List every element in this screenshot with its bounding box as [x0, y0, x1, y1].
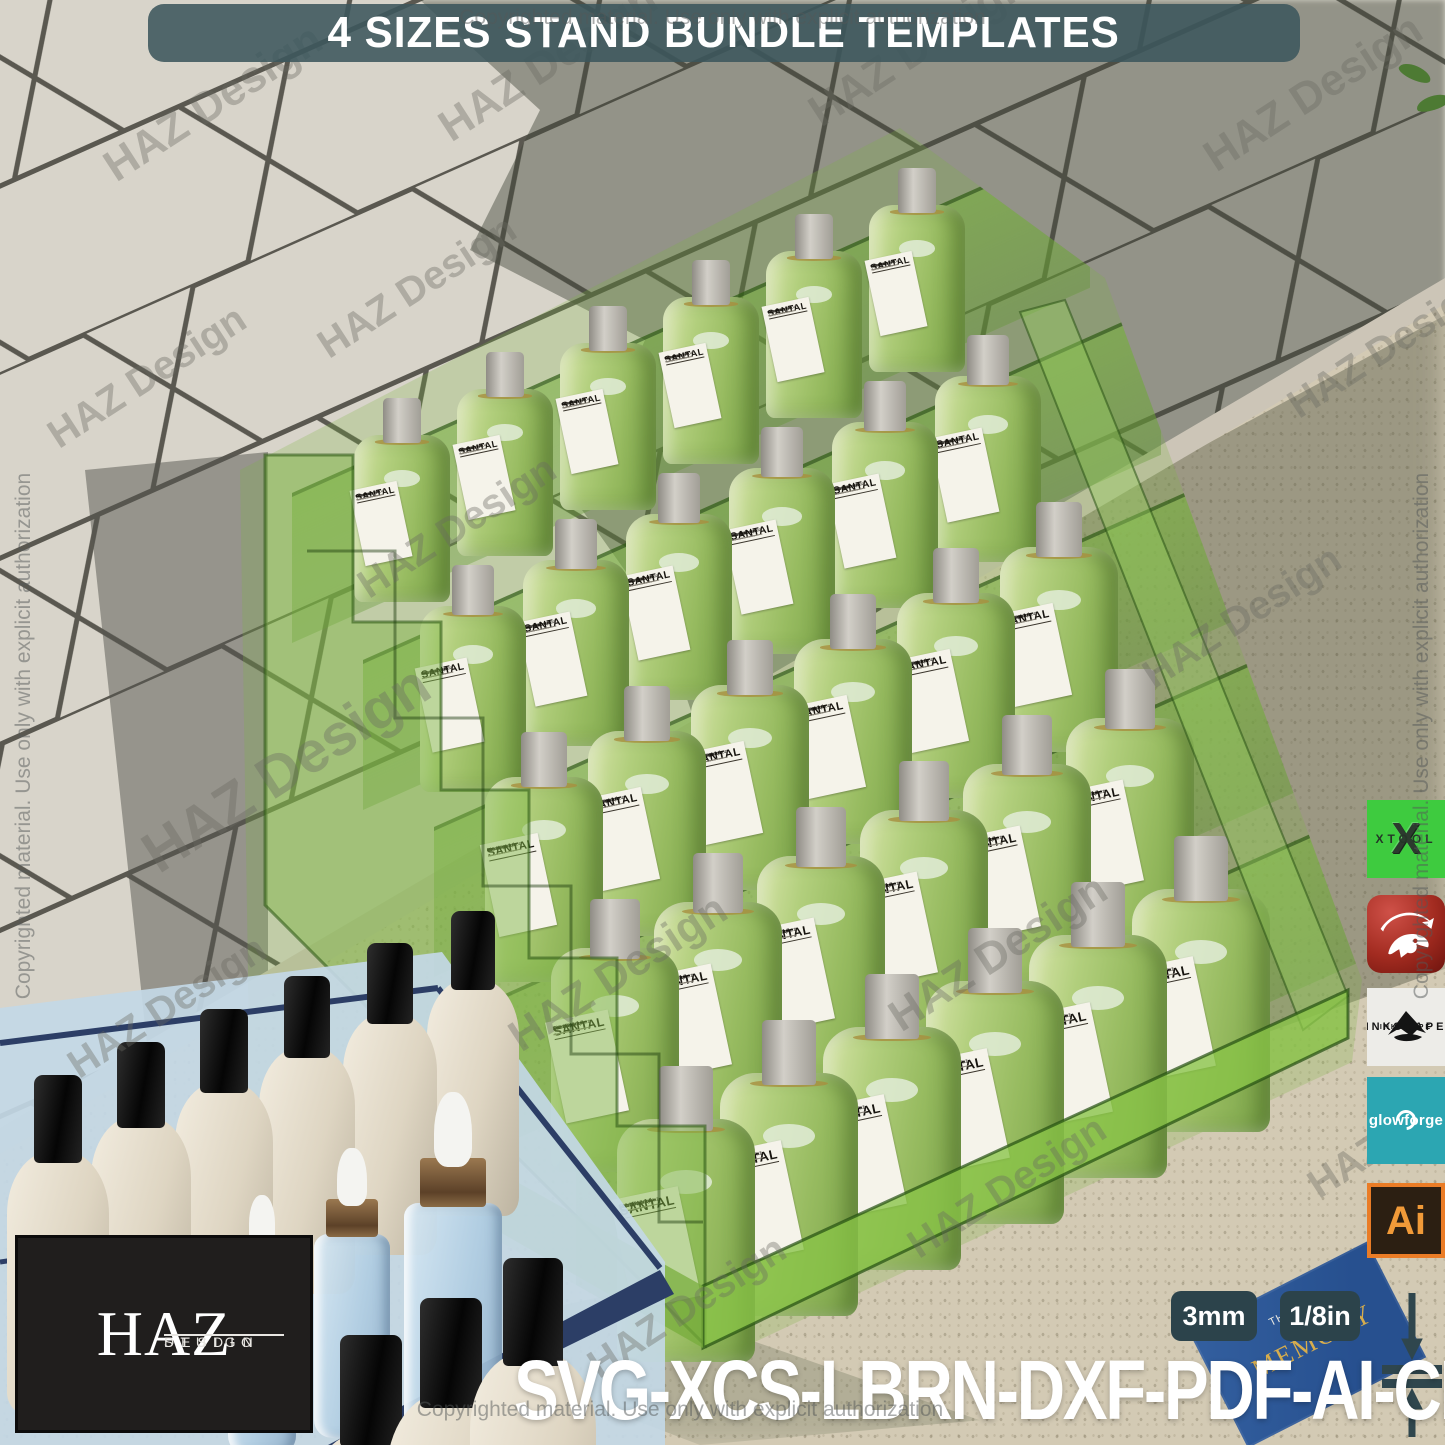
glowforge-wordmark: glowforge	[1369, 1112, 1443, 1129]
haz-design-watermark: HAZ Design	[900, 1107, 1115, 1268]
haz-design-watermark: HAZ Design	[500, 884, 736, 1062]
haz-design-watermark: HAZ Design	[40, 297, 255, 458]
thickness-badge-18in: 1/8in	[1280, 1291, 1360, 1341]
product-listing-image: SANTAL100ml e 3.4 fl.ozeau de parfumnatu…	[0, 0, 1445, 1445]
haz-design-watermark: HAZ Design	[130, 651, 442, 886]
thickness-badge-3mm: 3mm	[1171, 1291, 1257, 1341]
copyright-watermark-top: Copyrighted material. Use only with expl…	[0, 6, 1445, 30]
badge-18in-text: 1/8in	[1289, 1301, 1351, 1332]
copyright-watermark-left: Copyrighted material. Use only with expl…	[12, 376, 36, 1096]
haz-design-watermark: HAZ Design	[60, 927, 275, 1088]
haz-design-watermark: HAZ Design	[880, 864, 1116, 1042]
adobe-illustrator-icon: Ai	[1367, 1183, 1445, 1258]
watermark-layer: HAZ DesignHAZ DesignHAZ DesignHAZ Design…	[0, 0, 1445, 1445]
haz-design-watermark: HAZ Design	[350, 447, 565, 608]
ai-glyph: Ai	[1386, 1201, 1426, 1241]
haz-design-watermark: HAZ Design	[1135, 537, 1350, 698]
badge-3mm-text: 3mm	[1182, 1301, 1245, 1332]
copyright-watermark-bottom: Copyrighted material. Use only with expl…	[0, 1398, 1360, 1422]
haz-design-watermark: HAZ Design	[310, 207, 525, 368]
copyright-watermark-right: Copyrighted material. Use only with expl…	[1410, 376, 1434, 1096]
